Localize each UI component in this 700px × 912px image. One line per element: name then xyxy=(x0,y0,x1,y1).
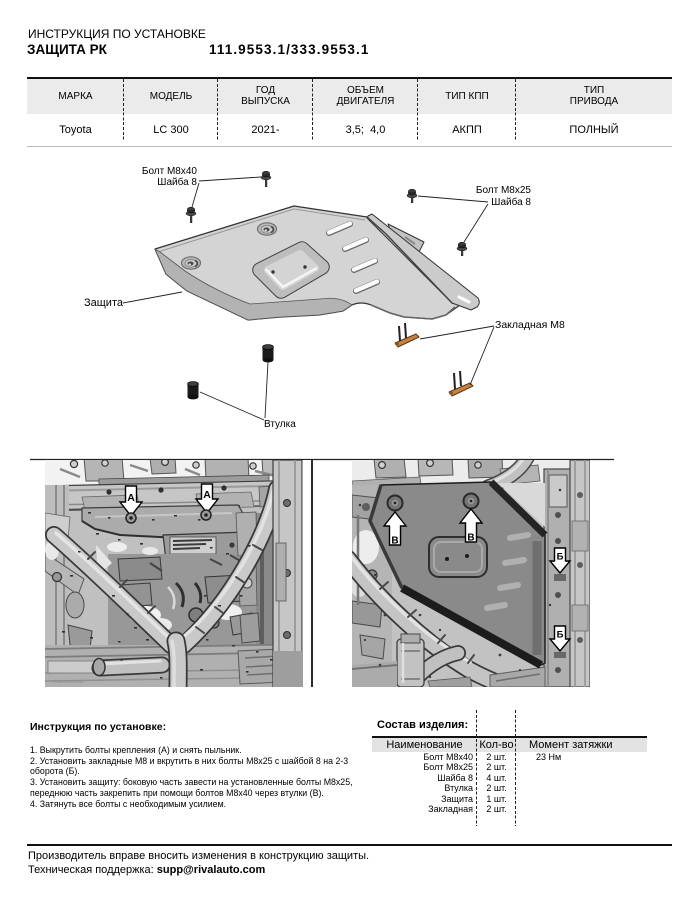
svg-text:Защита: Защита xyxy=(84,297,124,309)
svg-text:Болт М8х40: Болт М8х40 xyxy=(142,166,198,177)
svg-text:Шайба 8: Шайба 8 xyxy=(491,196,531,208)
svg-text:Б: Б xyxy=(557,630,564,641)
svg-text:Б: Б xyxy=(557,552,564,563)
svg-text:А: А xyxy=(127,492,135,504)
svg-text:Болт М8х25: Болт М8х25 xyxy=(476,185,532,196)
svg-text:В: В xyxy=(391,536,398,547)
svg-text:Втулка: Втулка xyxy=(264,419,296,430)
svg-text:RivalAvtoGroup: RivalAvtoGroup xyxy=(52,679,84,684)
svg-text:Шайба 8: Шайба 8 xyxy=(157,176,197,188)
svg-text:В: В xyxy=(467,533,474,544)
svg-text:А: А xyxy=(203,489,211,501)
svg-text:Закладная М8: Закладная М8 xyxy=(495,319,565,331)
